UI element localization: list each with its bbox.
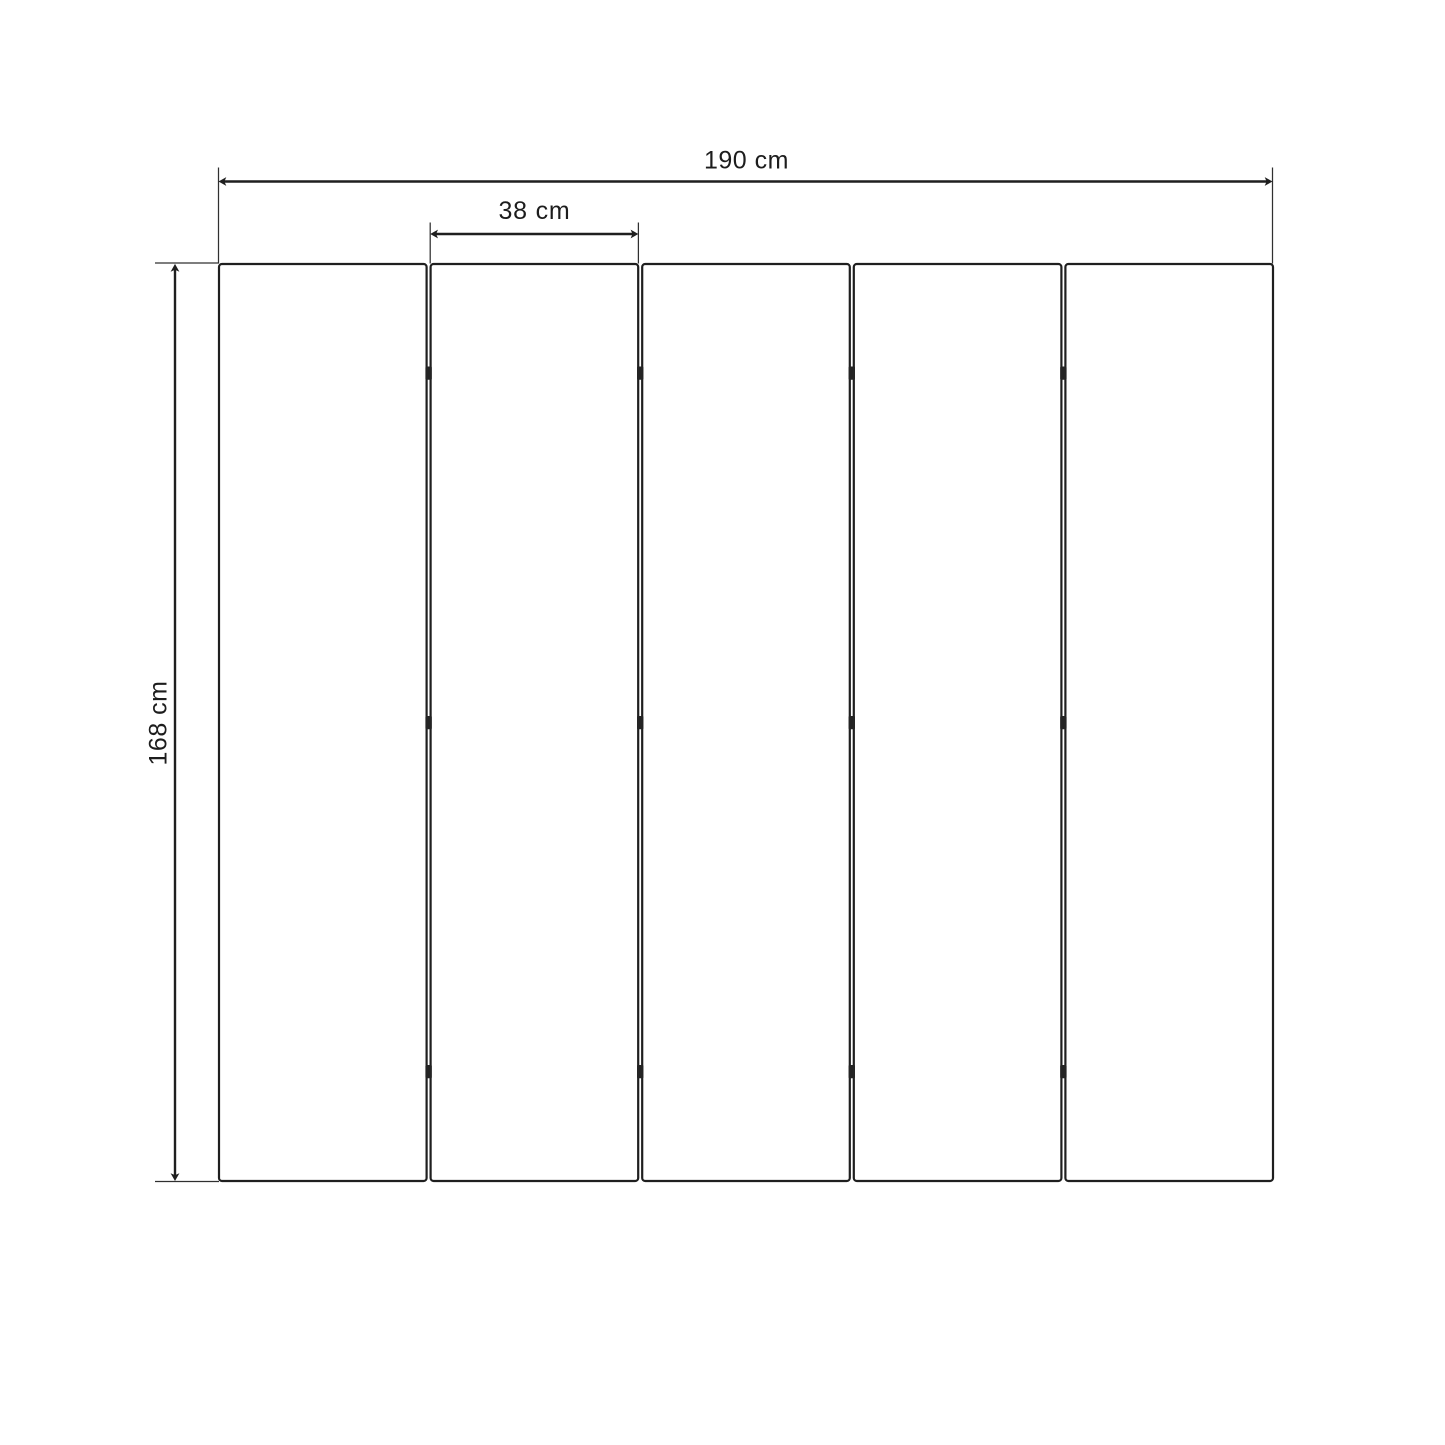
svg-text:168 cm: 168 cm — [145, 681, 173, 766]
svg-text:190 cm: 190 cm — [704, 147, 789, 175]
svg-text:38 cm: 38 cm — [498, 197, 570, 225]
